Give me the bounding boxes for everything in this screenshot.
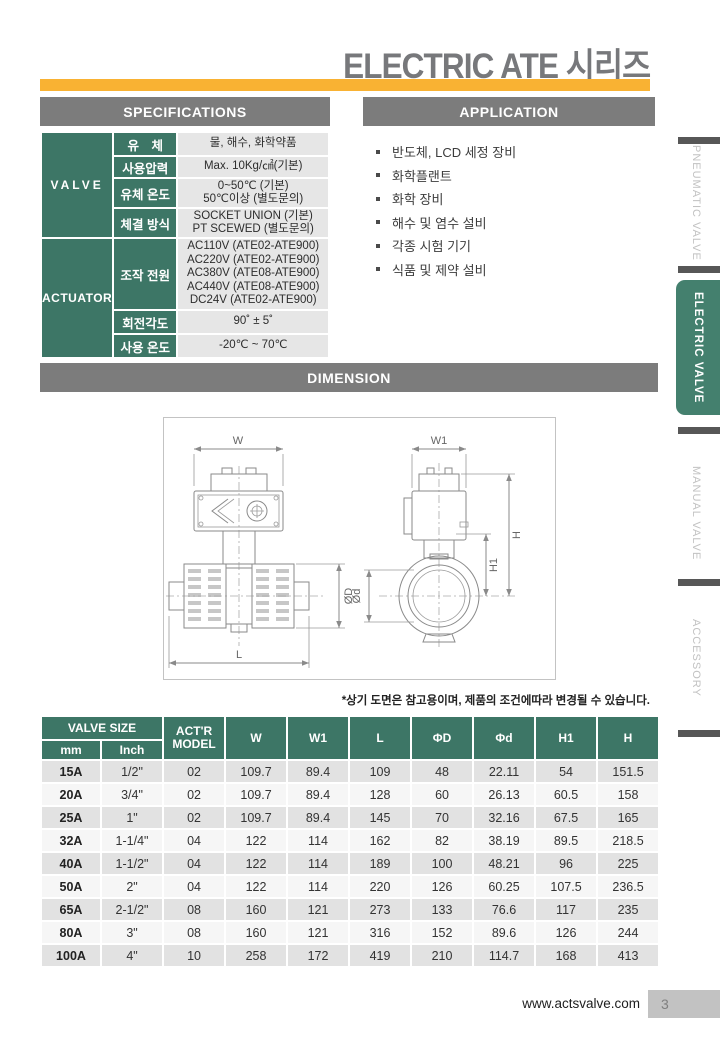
table-cell: 40A (41, 852, 101, 875)
table-cell: 70 (411, 806, 473, 829)
application-item: 해수 및 염수 설비 (372, 211, 652, 235)
table-cell: 413 (597, 944, 659, 967)
col-header-h: H (597, 716, 659, 760)
spec-value: -20℃ ~ 70℃ (178, 335, 328, 357)
table-cell: 48.21 (473, 852, 535, 875)
spec-label: 사용압력 (114, 157, 176, 177)
specifications-table: VALVE 유 체 물, 해수, 화학약품 사용압력 Max. 10Kg/㎠(기… (40, 131, 330, 359)
spec-label: 체결 방식 (114, 209, 176, 237)
catalog-page: ELECTRIC ATE 시리즈 SPECIFICATIONS APPLICAT… (0, 0, 720, 1040)
table-cell: 133 (411, 898, 473, 921)
table-cell: 1/2" (101, 760, 163, 783)
table-cell: 60.5 (535, 783, 597, 806)
table-cell: 38.19 (473, 829, 535, 852)
application-item: 화학플랜트 (372, 164, 652, 188)
table-cell: 165 (597, 806, 659, 829)
col-header-inch: Inch (101, 740, 163, 760)
table-cell: 04 (163, 875, 225, 898)
drawing-note: *상기 도면은 참고용이며, 제품의 조건에따라 변경될 수 있습니다. (342, 692, 650, 708)
table-cell: 122 (225, 852, 287, 875)
col-header-phiD: ΦD (411, 716, 473, 760)
table-cell: 89.4 (287, 806, 349, 829)
table-cell: 419 (349, 944, 411, 967)
table-cell: 114 (287, 875, 349, 898)
table-cell: 04 (163, 852, 225, 875)
table-cell: 126 (535, 921, 597, 944)
application-header: APPLICATION (363, 97, 655, 126)
table-cell: 158 (597, 783, 659, 806)
table-cell: 54 (535, 760, 597, 783)
table-cell: 20A (41, 783, 101, 806)
dim-label-w1: W1 (431, 435, 448, 447)
table-cell: 316 (349, 921, 411, 944)
table-cell: 168 (535, 944, 597, 967)
table-cell: 121 (287, 898, 349, 921)
spec-value: 물, 해수, 화학약품 (178, 133, 328, 155)
table-cell: 89.4 (287, 783, 349, 806)
table-cell: 151.5 (597, 760, 659, 783)
spec-value: 0~50℃ (기본) 50℃이상 (별도문의) (178, 179, 328, 207)
dim-label-l: L (236, 649, 242, 661)
table-cell: 109.7 (225, 806, 287, 829)
table-cell: 236.5 (597, 875, 659, 898)
col-header-phid: Φd (473, 716, 535, 760)
table-row: 50A2"0412211422012660.25107.5236.5 (41, 875, 659, 898)
table-cell: 04 (163, 829, 225, 852)
col-header-h1: H1 (535, 716, 597, 760)
table-cell: 08 (163, 921, 225, 944)
sidebar-item-accessory[interactable]: ACCESSORY (682, 610, 710, 706)
table-cell: 128 (349, 783, 411, 806)
dimension-table-body: 15A1/2"02109.789.41094822.1154151.520A3/… (41, 760, 659, 967)
table-cell: 02 (163, 783, 225, 806)
table-cell: 218.5 (597, 829, 659, 852)
page-number: 3 (661, 996, 669, 1012)
table-cell: 109.7 (225, 783, 287, 806)
table-cell: 1" (101, 806, 163, 829)
table-cell: 109.7 (225, 760, 287, 783)
dimension-drawing: W L ØD W1 Ød H1 (163, 417, 556, 680)
table-cell: 25A (41, 806, 101, 829)
sidebar-item-pneumatic-valve[interactable]: PNEUMATIC VALVE (682, 150, 710, 255)
table-row: 25A1"02109.789.41457032.1667.5165 (41, 806, 659, 829)
spec-label: 사용 온도 (114, 335, 176, 357)
application-item-label: 화학플랜트 (392, 166, 452, 185)
table-cell: 210 (411, 944, 473, 967)
spec-value: AC110V (ATE02-ATE900) AC220V (ATE02-ATE9… (178, 239, 328, 309)
table-cell: 121 (287, 921, 349, 944)
table-cell: 1-1/2" (101, 852, 163, 875)
table-cell: 60.25 (473, 875, 535, 898)
table-cell: 100A (41, 944, 101, 967)
table-cell: 225 (597, 852, 659, 875)
table-cell: 162 (349, 829, 411, 852)
sidebar-divider (678, 730, 720, 737)
table-cell: 3/4" (101, 783, 163, 806)
sidebar-divider (678, 579, 720, 586)
bullet-square-icon (376, 173, 380, 177)
specifications-header: SPECIFICATIONS (40, 97, 330, 126)
dimension-header: DIMENSION (40, 363, 658, 392)
table-cell: 189 (349, 852, 411, 875)
table-cell: 26.13 (473, 783, 535, 806)
table-cell: 152 (411, 921, 473, 944)
table-cell: 67.5 (535, 806, 597, 829)
application-item-label: 반도체, LCD 세정 장비 (392, 142, 516, 161)
dim-label-h1: H1 (488, 558, 500, 572)
application-item: 화학 장비 (372, 187, 652, 211)
table-row: 80A3"0816012131615289.6126244 (41, 921, 659, 944)
table-cell: 2-1/2" (101, 898, 163, 921)
table-row: 32A1-1/4"041221141628238.1989.5218.5 (41, 829, 659, 852)
bullet-square-icon (376, 197, 380, 201)
bullet-square-icon (376, 244, 380, 248)
table-row: 40A1-1/2"0412211418910048.2196225 (41, 852, 659, 875)
table-cell: 60 (411, 783, 473, 806)
union-ribs (188, 569, 289, 621)
table-row: 65A2-1/2"0816012127313376.6117235 (41, 898, 659, 921)
application-list: 반도체, LCD 세정 장비화학플랜트화학 장비해수 및 염수 설비각종 시험 … (372, 140, 652, 281)
application-item-label: 식품 및 제약 설비 (392, 260, 487, 279)
spec-label: 유 체 (114, 133, 176, 155)
sidebar-item-manual-valve[interactable]: MANUAL VALVE (682, 462, 710, 564)
table-cell: 126 (411, 875, 473, 898)
table-cell: 4" (101, 944, 163, 967)
table-cell: 122 (225, 829, 287, 852)
table-cell: 172 (287, 944, 349, 967)
table-cell: 117 (535, 898, 597, 921)
table-cell: 114 (287, 852, 349, 875)
sidebar-divider (678, 137, 720, 144)
sidebar-divider (678, 266, 720, 273)
table-cell: 76.6 (473, 898, 535, 921)
col-header-actr-model: ACT'R MODEL (163, 716, 225, 760)
table-cell: 32A (41, 829, 101, 852)
sidebar-item-electric-valve[interactable]: ELECTRIC VALVE (676, 280, 720, 415)
table-cell: 258 (225, 944, 287, 967)
application-item-label: 해수 및 염수 설비 (392, 213, 487, 232)
spec-group-actuator: ACTUATOR (42, 239, 112, 357)
table-cell: 2" (101, 875, 163, 898)
table-cell: 65A (41, 898, 101, 921)
dim-label-h: H (511, 531, 523, 539)
spec-label: 조작 전원 (114, 239, 176, 309)
application-item: 각종 시험 기기 (372, 234, 652, 258)
bullet-square-icon (376, 220, 380, 224)
table-row: 15A1/2"02109.789.41094822.1154151.5 (41, 760, 659, 783)
bullet-square-icon (376, 150, 380, 154)
page-number-box: 3 (648, 990, 720, 1018)
title-accent-bar (40, 79, 650, 91)
table-cell: 122 (225, 875, 287, 898)
spec-label: 유체 온도 (114, 179, 176, 207)
table-cell: 32.16 (473, 806, 535, 829)
table-cell: 89.5 (535, 829, 597, 852)
application-item-label: 화학 장비 (392, 189, 443, 208)
dim-label-w: W (233, 435, 244, 447)
spec-group-valve: VALVE (42, 133, 112, 237)
spec-label: 회전각도 (114, 311, 176, 333)
table-cell: 89.4 (287, 760, 349, 783)
table-cell: 235 (597, 898, 659, 921)
table-cell: 3" (101, 921, 163, 944)
table-cell: 82 (411, 829, 473, 852)
bullet-square-icon (376, 267, 380, 271)
application-item: 반도체, LCD 세정 장비 (372, 140, 652, 164)
table-cell: 08 (163, 898, 225, 921)
table-cell: 80A (41, 921, 101, 944)
col-header-mm: mm (41, 740, 101, 760)
table-cell: 50A (41, 875, 101, 898)
col-header-l: L (349, 716, 411, 760)
table-cell: 114.7 (473, 944, 535, 967)
application-item-label: 각종 시험 기기 (392, 236, 471, 255)
table-cell: 107.5 (535, 875, 597, 898)
table-cell: 10 (163, 944, 225, 967)
col-header-valve-size: VALVE SIZE (41, 716, 163, 740)
dimension-table: VALVE SIZE ACT'R MODEL W W1 L ΦD Φd H1 H… (40, 715, 660, 968)
table-row: 100A4"10258172419210114.7168413 (41, 944, 659, 967)
table-cell: 273 (349, 898, 411, 921)
application-item: 식품 및 제약 설비 (372, 258, 652, 282)
table-cell: 244 (597, 921, 659, 944)
table-cell: 145 (349, 806, 411, 829)
table-cell: 96 (535, 852, 597, 875)
table-cell: 48 (411, 760, 473, 783)
col-header-w: W (225, 716, 287, 760)
table-cell: 22.11 (473, 760, 535, 783)
sidebar-divider (678, 427, 720, 434)
table-cell: 114 (287, 829, 349, 852)
table-cell: 160 (225, 921, 287, 944)
spec-value: SOCKET UNION (기본) PT SCEWED (별도문의) (178, 209, 328, 237)
footer-url[interactable]: www.actsvalve.com (522, 996, 640, 1011)
table-row: 20A3/4"02109.789.41286026.1360.5158 (41, 783, 659, 806)
table-cell: 220 (349, 875, 411, 898)
table-cell: 89.6 (473, 921, 535, 944)
table-cell: 1-1/4" (101, 829, 163, 852)
table-cell: 02 (163, 760, 225, 783)
dim-label-phid: Ød (351, 589, 363, 604)
table-cell: 160 (225, 898, 287, 921)
spec-value: 90˚ ± 5˚ (178, 311, 328, 333)
col-header-w1: W1 (287, 716, 349, 760)
spec-value: Max. 10Kg/㎠(기본) (178, 157, 328, 177)
table-cell: 109 (349, 760, 411, 783)
table-cell: 02 (163, 806, 225, 829)
table-cell: 100 (411, 852, 473, 875)
table-cell: 15A (41, 760, 101, 783)
